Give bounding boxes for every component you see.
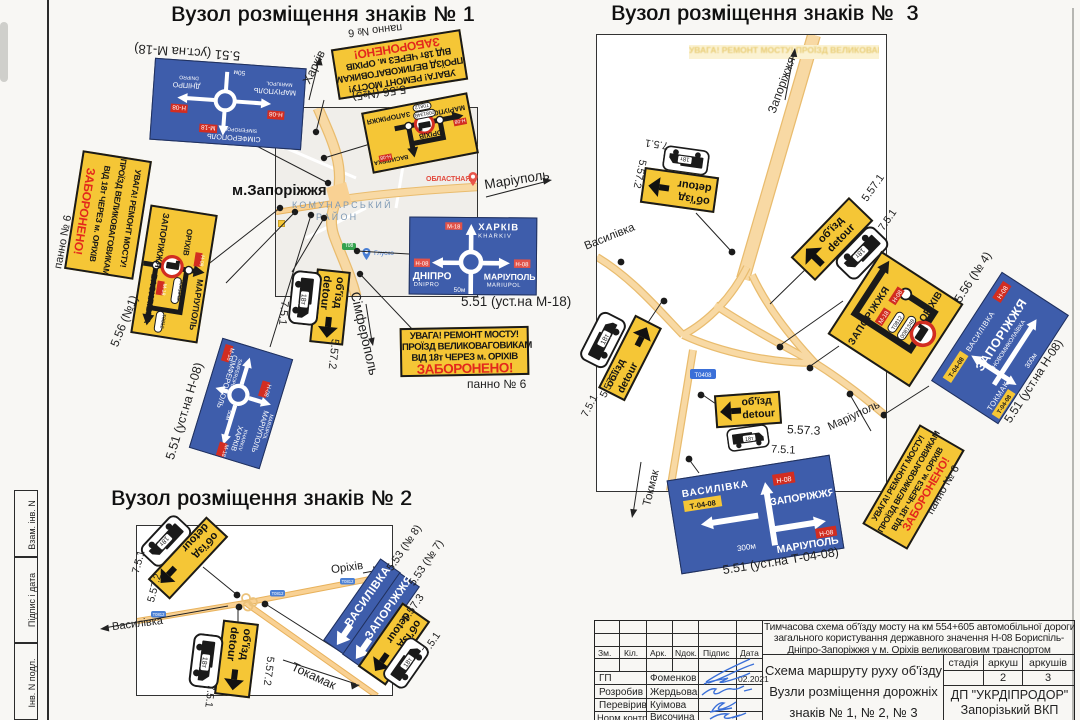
svg-text:ДНІПРО: ДНІПРО: [413, 271, 452, 282]
svg-text:KHARKIV: KHARKIV: [478, 234, 512, 240]
svg-text:Н-08: Н-08: [515, 262, 529, 268]
svg-text:МАРІУПОЛЬ: МАРІУПОЛЬ: [253, 86, 296, 98]
svg-text:ЗАПОРІЖЖЯ: ЗАПОРІЖЖЯ: [770, 487, 836, 508]
svg-text:Т0812: Т0812: [272, 591, 285, 596]
svg-text:ЗАПОРІЖЖЯ: ЗАПОРІЖЖЯ: [366, 110, 411, 125]
svg-text:DNIPRO: DNIPRO: [179, 74, 199, 81]
svg-text:Н-08: Н-08: [996, 285, 1010, 301]
svg-text:50м: 50м: [454, 287, 466, 294]
svg-text:Т0408: Т0408: [694, 373, 712, 379]
svg-text:18т: 18т: [200, 656, 208, 669]
svg-text:М-18: М-18: [878, 310, 891, 325]
svg-text:Н-08: Н-08: [415, 261, 429, 267]
svg-text:М-18: М-18: [200, 123, 215, 131]
svg-text:18т: 18т: [745, 436, 755, 443]
svg-text:DNIPRO: DNIPRO: [414, 282, 440, 288]
svg-text:СІМФЕРОПОЛЬ: СІМФЕРОПОЛЬ: [206, 132, 260, 145]
svg-text:Н-08: Н-08: [172, 103, 187, 111]
svg-text:ХАРКІВ: ХАРКІВ: [478, 222, 519, 233]
svg-text:Н-08: Н-08: [776, 476, 792, 485]
svg-text:Т0812: Т0812: [342, 579, 355, 584]
svg-text:МАРІУПОЛЬ: МАРІУПОЛЬ: [484, 272, 536, 282]
svg-text:ДНІПРО: ДНІПРО: [172, 80, 200, 91]
svg-text:18т: 18т: [299, 293, 307, 305]
svg-text:М-18: М-18: [447, 224, 460, 230]
svg-text:300м: 300м: [736, 541, 756, 553]
svg-text:50м: 50м: [233, 68, 246, 76]
svg-text:MARIUPOL: MARIUPOL: [487, 283, 522, 289]
svg-text:МАРІУПОЛЬ: МАРІУПОЛЬ: [187, 278, 205, 331]
svg-text:ОРІХІВ: ОРІХІВ: [181, 228, 194, 256]
svg-text:Н-08: Н-08: [268, 110, 283, 118]
